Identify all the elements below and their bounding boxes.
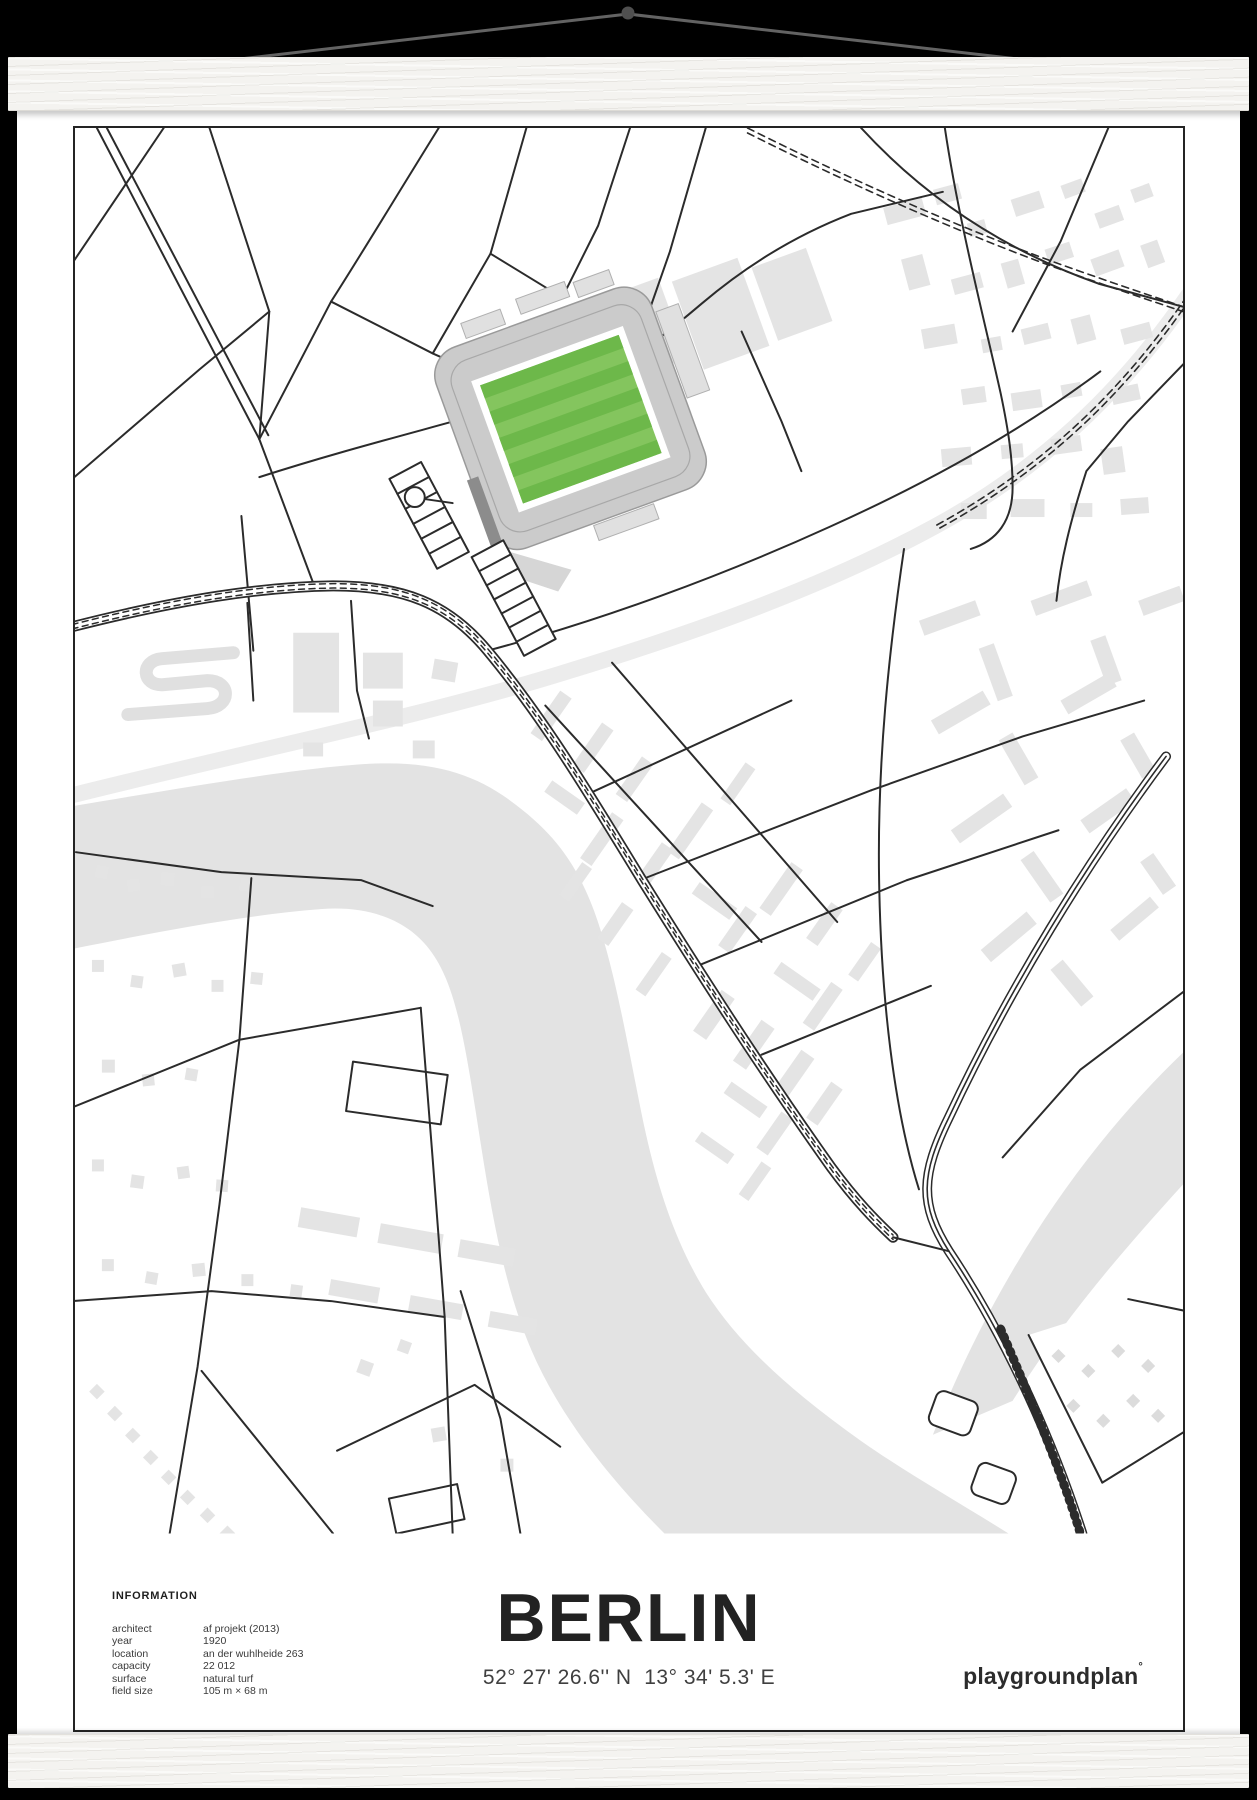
brand-text: playgroundplan [963,1663,1138,1689]
bottom-rail [8,1734,1249,1788]
top-rail [8,57,1249,111]
serpentine-path [128,653,234,715]
brand-logo: playgroundplan° [963,1661,1143,1690]
poster-photo-scene: INFORMATION architectaf projekt (2013) y… [0,0,1257,1800]
poster-title: BERLIN [73,1584,1185,1652]
wall-nail [622,7,635,20]
map-frame [73,126,1185,1732]
map-svg [75,128,1183,1730]
roundabout [405,487,425,507]
string-left [240,14,628,59]
brand-degree-mark: ° [1138,1661,1143,1673]
string-right [628,14,1018,59]
